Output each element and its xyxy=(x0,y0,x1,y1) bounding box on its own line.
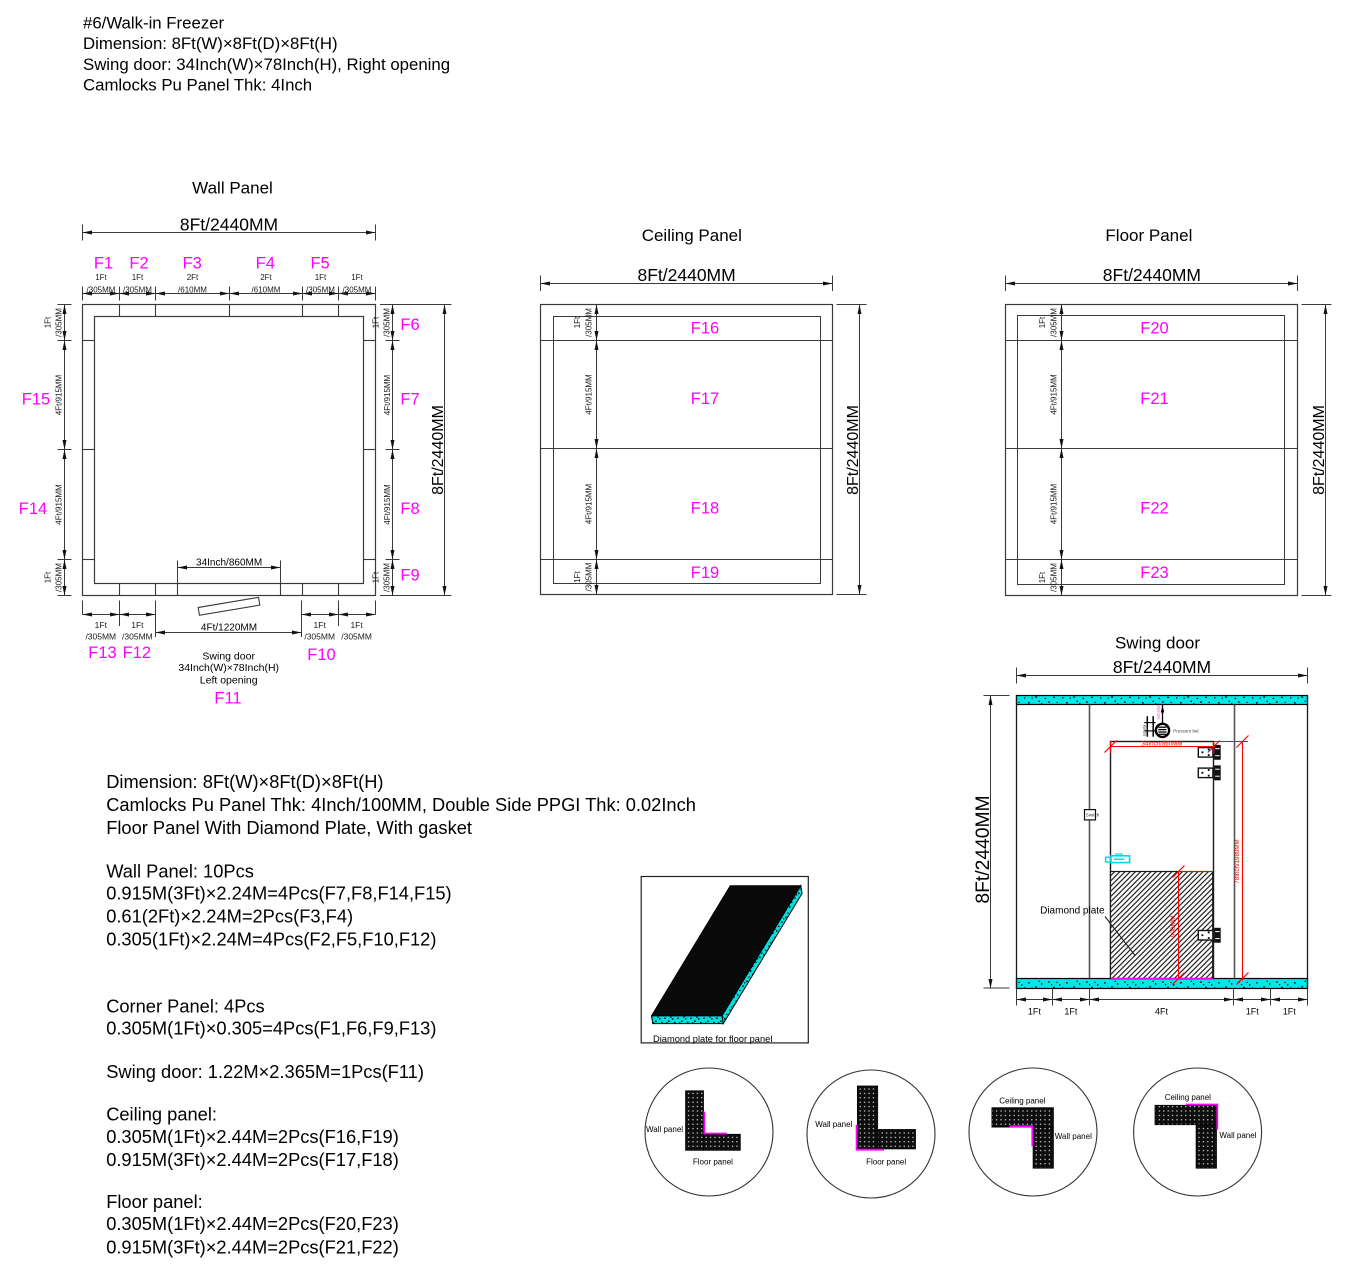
svg-text:F11: F11 xyxy=(214,690,241,708)
svg-text:4Ft/915MM: 4Ft/915MM xyxy=(585,374,594,415)
svg-text:/305MM: /305MM xyxy=(1050,563,1059,592)
svg-text:4Ft/915MM: 4Ft/915MM xyxy=(1050,483,1059,524)
svg-text:Floor panel: Floor panel xyxy=(866,1157,906,1166)
svg-text:1Ft: 1Ft xyxy=(95,620,108,630)
svg-text:F19: F19 xyxy=(691,564,719,582)
svg-text:1Ft: 1Ft xyxy=(1038,316,1047,328)
svg-text:1Ft: 1Ft xyxy=(314,620,327,630)
svg-text:Ceiling panel: Ceiling panel xyxy=(1165,1093,1211,1102)
svg-text:F12: F12 xyxy=(123,644,151,662)
svg-text:Swing door: Swing door xyxy=(1115,634,1200,653)
svg-text:Dimension: 8Ft(W)×8Ft(D)×8Ft(H: Dimension: 8Ft(W)×8Ft(D)×8Ft(H) xyxy=(83,34,338,53)
svg-text:F6: F6 xyxy=(400,316,419,334)
svg-text:F2: F2 xyxy=(129,255,148,273)
svg-text:F5: F5 xyxy=(310,255,329,273)
svg-text:Wall panel: Wall panel xyxy=(646,1125,683,1134)
svg-text:8Ft/2440MM: 8Ft/2440MM xyxy=(180,215,278,235)
svg-text:F1: F1 xyxy=(94,255,113,273)
svg-text:1Ft: 1Ft xyxy=(95,273,107,282)
svg-text:8Ft/2440MM: 8Ft/2440MM xyxy=(1113,657,1211,677)
svg-text:F23: F23 xyxy=(1140,564,1168,582)
svg-text:Swing door: Swing door xyxy=(202,651,255,663)
svg-text:F3: F3 xyxy=(183,255,202,273)
svg-text:0.305M(1Ft)×0.305=4Pcs(F1,F6,F: 0.305M(1Ft)×0.305=4Pcs(F1,F6,F9,F13) xyxy=(106,1017,436,1038)
svg-text:/305MM: /305MM xyxy=(55,308,64,337)
svg-text:4Ft: 4Ft xyxy=(1155,1007,1169,1017)
svg-text:0.305(1Ft)×2.24M=4Pcs(F2,F5,F1: 0.305(1Ft)×2.24M=4Pcs(F2,F5,F10,F12) xyxy=(106,929,436,950)
svg-text:Diamond plate: Diamond plate xyxy=(1040,905,1105,916)
svg-text:Wall panel: Wall panel xyxy=(1219,1131,1256,1140)
svg-text:/305MM: /305MM xyxy=(585,562,594,591)
svg-text:2Ft: 2Ft xyxy=(187,273,199,282)
svg-text:8Ft/2440MM: 8Ft/2440MM xyxy=(845,405,862,495)
svg-text:34Inch/860MM: 34Inch/860MM xyxy=(196,557,262,568)
svg-text:/305MM: /305MM xyxy=(55,563,64,592)
svg-text:4Ft/915MM: 4Ft/915MM xyxy=(585,483,594,524)
svg-text:F21: F21 xyxy=(1140,390,1168,408)
svg-text:8Ft/2440MM: 8Ft/2440MM xyxy=(1311,405,1328,495)
svg-text:Left opening: Left opening xyxy=(200,675,258,687)
svg-text:Swing door: 34Inch(W)×78Inch(H: Swing door: 34Inch(W)×78Inch(H), Right o… xyxy=(83,55,450,74)
svg-text:/305MM: /305MM xyxy=(1050,308,1059,337)
svg-text:Floor panel:: Floor panel: xyxy=(106,1191,203,1212)
svg-text:Dimension: 8Ft(W)×8Ft(D)×8Ft(H: Dimension: 8Ft(W)×8Ft(D)×8Ft(H) xyxy=(106,771,383,792)
svg-text:/305MM: /305MM xyxy=(383,563,392,592)
svg-text:Corner Panel: 4Pcs: Corner Panel: 4Pcs xyxy=(106,995,265,1016)
svg-text:0.915M(3Ft)×2.44M=2Pcs(F21,F22: 0.915M(3Ft)×2.44M=2Pcs(F21,F22) xyxy=(106,1236,399,1257)
svg-text:/305MM: /305MM xyxy=(341,632,372,642)
svg-text:8Ft/2440MM: 8Ft/2440MM xyxy=(637,265,735,285)
svg-text:1Ft: 1Ft xyxy=(132,273,144,282)
svg-text:/305MM: /305MM xyxy=(85,632,116,642)
svg-text:34Inch/860MM: 34Inch/860MM xyxy=(1142,740,1183,747)
svg-text:50MM: 50MM xyxy=(1142,724,1147,736)
svg-text:1Ft: 1Ft xyxy=(44,571,53,583)
svg-text:1Ft: 1Ft xyxy=(44,316,53,328)
svg-text:4Ft/915MM: 4Ft/915MM xyxy=(383,484,392,525)
svg-text:4Ft/1220MM: 4Ft/1220MM xyxy=(201,623,257,634)
svg-text:Ceiling panel: Ceiling panel xyxy=(999,1096,1045,1105)
svg-text:/305MM: /305MM xyxy=(122,632,153,642)
svg-text:F16: F16 xyxy=(691,320,719,338)
svg-text:1Ft: 1Ft xyxy=(1028,1007,1042,1017)
svg-text:F20: F20 xyxy=(1140,320,1168,338)
svg-text:1Ft: 1Ft xyxy=(573,316,582,328)
svg-text:Floor panel: Floor panel xyxy=(693,1157,733,1166)
svg-text:/305MM: /305MM xyxy=(383,308,392,337)
svg-text:1Ft: 1Ft xyxy=(573,570,582,582)
svg-text:0.61(2Ft)×2.24M=2Pcs(F3,F4): 0.61(2Ft)×2.24M=2Pcs(F3,F4) xyxy=(106,906,353,927)
svg-text:F22: F22 xyxy=(1140,500,1168,518)
svg-text:Ceiling Panel: Ceiling Panel xyxy=(642,226,742,245)
svg-text:4Ft/915MM: 4Ft/915MM xyxy=(383,374,392,415)
svg-text:1Ft: 1Ft xyxy=(350,620,363,630)
svg-text:/305MM: /305MM xyxy=(304,632,335,642)
svg-text:0.915M(3Ft)×2.24M=4Pcs(F7,F8,F: 0.915M(3Ft)×2.24M=4Pcs(F7,F8,F14,F15) xyxy=(106,883,451,904)
svg-text:8Ft/2440MM: 8Ft/2440MM xyxy=(430,405,447,495)
svg-text:1Ft: 1Ft xyxy=(1064,1007,1078,1017)
svg-text:F14: F14 xyxy=(19,500,47,518)
svg-text:8Ft/2440MM: 8Ft/2440MM xyxy=(1103,265,1201,285)
svg-text:8Ft/2440MM: 8Ft/2440MM xyxy=(973,795,994,903)
svg-text:F7: F7 xyxy=(400,390,419,408)
svg-text:0.305M(1Ft)×2.44M=2Pcs(F16,F19: 0.305M(1Ft)×2.44M=2Pcs(F16,F19) xyxy=(106,1126,399,1147)
svg-text:1Ft: 1Ft xyxy=(1038,571,1047,583)
svg-text:F8: F8 xyxy=(400,500,419,518)
svg-text:Pressure bal: Pressure bal xyxy=(1173,729,1198,734)
svg-text:Wall Panel: Wall Panel xyxy=(192,179,273,198)
svg-text:0.915M(3Ft)×2.44M=2Pcs(F17,F18: 0.915M(3Ft)×2.44M=2Pcs(F17,F18) xyxy=(106,1149,399,1170)
svg-text:4Ft/915MM: 4Ft/915MM xyxy=(55,484,64,525)
svg-text:Wall panel: Wall panel xyxy=(1055,1132,1092,1141)
svg-text:0.305M(1Ft)×2.44M=2Pcs(F20,F23: 0.305M(1Ft)×2.44M=2Pcs(F20,F23) xyxy=(106,1213,399,1234)
svg-text:1Ft: 1Ft xyxy=(351,273,363,282)
svg-text:1Ft: 1Ft xyxy=(315,273,327,282)
svg-text:2Ft: 2Ft xyxy=(260,273,272,282)
svg-text:Switch: Switch xyxy=(1086,812,1100,817)
svg-text:/305MM: /305MM xyxy=(585,308,594,337)
svg-text:1Ft: 1Ft xyxy=(372,571,381,583)
svg-text:F9: F9 xyxy=(400,567,419,585)
svg-text:Swing door: 1.22M×2.365M=1Pcs(: Swing door: 1.22M×2.365M=1Pcs(F11) xyxy=(106,1061,424,1082)
svg-text:1Ft: 1Ft xyxy=(372,316,381,328)
svg-text:F17: F17 xyxy=(691,390,719,408)
svg-text:Diamond plate for floor panel: Diamond plate for floor panel xyxy=(653,1034,772,1044)
svg-text:4Ft/915MM: 4Ft/915MM xyxy=(55,374,64,415)
svg-text:/610MM: /610MM xyxy=(178,285,207,294)
svg-text:4Ft/915MM: 4Ft/915MM xyxy=(1050,374,1059,415)
svg-text:F15: F15 xyxy=(22,391,50,409)
svg-text:1Ft: 1Ft xyxy=(1246,1007,1260,1017)
svg-text:Camlocks Pu Panel Thk: 4Inch/1: Camlocks Pu Panel Thk: 4Inch/100MM, Doub… xyxy=(106,794,696,815)
svg-text:F4: F4 xyxy=(256,255,275,273)
svg-text:Floor Panel With Diamond Plate: Floor Panel With Diamond Plate, With gas… xyxy=(106,817,472,838)
svg-text:900MM: 900MM xyxy=(1170,916,1177,938)
svg-text:F18: F18 xyxy=(691,500,719,518)
svg-text:F10: F10 xyxy=(307,646,335,664)
svg-text:Ceiling panel:: Ceiling panel: xyxy=(106,1103,217,1124)
svg-text:Camlocks Pu Panel Thk: 4Inch: Camlocks Pu Panel Thk: 4Inch xyxy=(83,76,312,95)
svg-text:78Inch/1980MM: 78Inch/1980MM xyxy=(1234,839,1241,883)
svg-text:500MM: 500MM xyxy=(1156,705,1161,719)
svg-text:Floor Panel: Floor Panel xyxy=(1105,226,1192,245)
svg-text:F13: F13 xyxy=(88,644,116,662)
svg-text:#6/Walk-in Freezer: #6/Walk-in Freezer xyxy=(83,13,225,32)
svg-text:34Inch(W)×78Inch(H): 34Inch(W)×78Inch(H) xyxy=(178,662,279,674)
svg-text:/610MM: /610MM xyxy=(252,285,281,294)
svg-text:1Ft: 1Ft xyxy=(131,620,144,630)
svg-text:1Ft: 1Ft xyxy=(1283,1007,1297,1017)
svg-text:Wall panel: Wall panel xyxy=(815,1120,852,1129)
svg-text:Wall Panel: 10Pcs: Wall Panel: 10Pcs xyxy=(106,860,254,881)
